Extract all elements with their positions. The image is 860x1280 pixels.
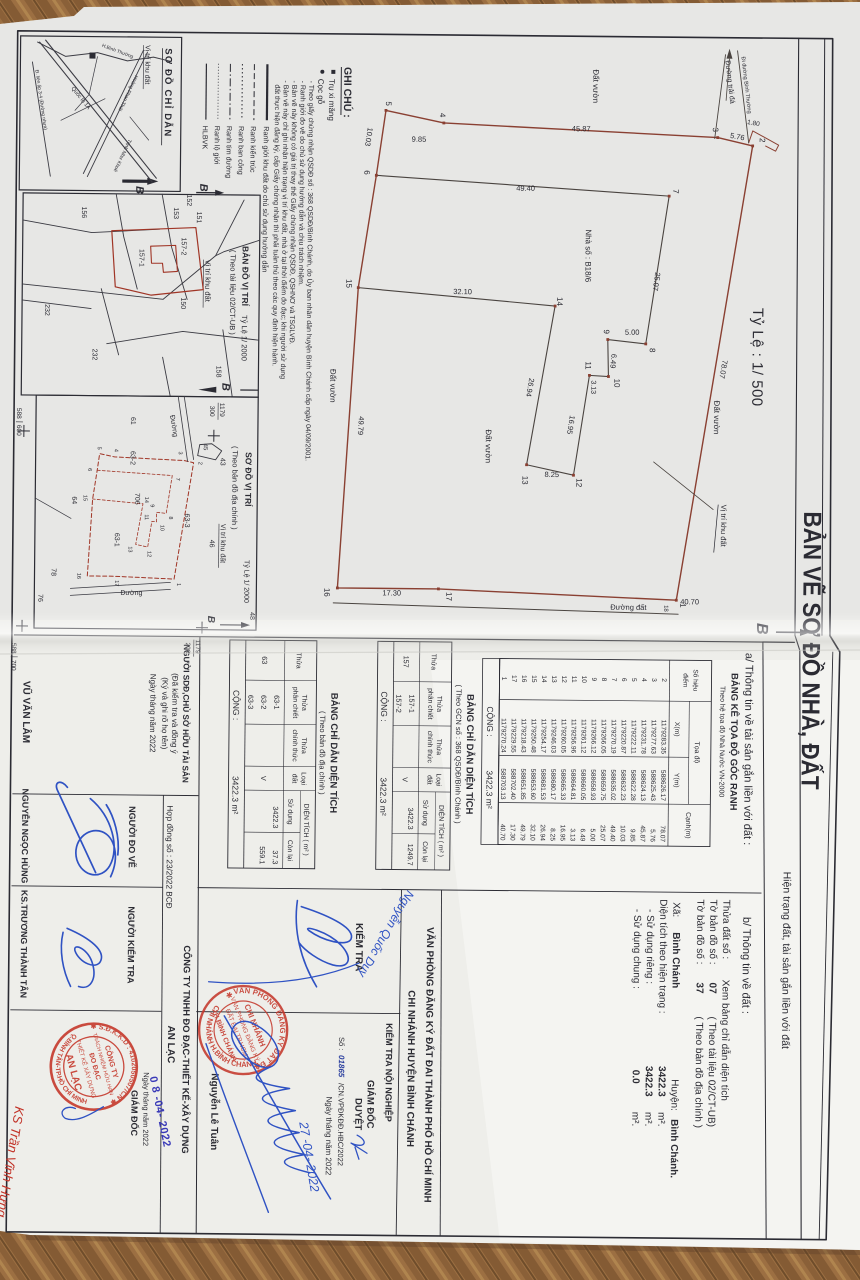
- svg-text:( Theo GCN số : 368 QSDĐ/Bình: ( Theo GCN số : 368 QSDĐ/Bình Chánh ): [453, 685, 463, 825]
- svg-text:Thửa: Thửa: [300, 694, 308, 711]
- svg-text:157-2: 157-2: [394, 694, 403, 712]
- svg-text:9.85: 9.85: [629, 829, 636, 842]
- svg-text:Loại: Loại: [299, 772, 306, 785]
- svg-text:- Sử dụng riêng :: - Sử dụng riêng :: [644, 909, 657, 984]
- svg-text:( Theo bản đồ địa chính ): ( Theo bản đồ địa chính ): [692, 1016, 705, 1128]
- svg-text:10: 10: [159, 525, 165, 531]
- svg-text:Diện tích theo hiện trạng :: Diện tích theo hiện trạng :: [656, 899, 668, 1014]
- svg-text:Tỷ Lệ 1/ 2000: Tỷ Lệ 1/ 2000: [242, 560, 249, 603]
- svg-text:588622.28: 588622.28: [629, 770, 636, 802]
- svg-text:559.1: 559.1: [258, 846, 267, 864]
- svg-text:B: B: [133, 186, 145, 194]
- svg-text:1179254.17: 1179254.17: [539, 719, 546, 754]
- svg-text:153: 153: [172, 207, 179, 219]
- svg-text:Ranh tim đường: Ranh tim đường: [224, 126, 234, 178]
- svg-text:26.94: 26.94: [539, 824, 546, 841]
- svg-text:a/ Thông tin về tài sản gắn li: a/ Thông tin về tài sản gắn liền với đất…: [741, 653, 756, 845]
- svg-text:588653.60: 588653.60: [529, 769, 536, 801]
- svg-text:588: 588: [15, 408, 22, 419]
- svg-text:Tờ bản đồ số :: Tờ bản đồ số :: [707, 900, 720, 965]
- svg-text:07: 07: [707, 983, 718, 995]
- svg-text:63-3: 63-3: [246, 695, 255, 709]
- svg-text:VŨ VĂN LÂM: VŨ VĂN LÂM: [20, 681, 34, 743]
- svg-text:KIỂM TRA NỘI NGHIỆP: KIỂM TRA NỘI NGHIỆP: [383, 1023, 395, 1122]
- svg-text:SƠ ĐỒ CHỈ DẪN: SƠ ĐỒ CHỈ DẪN: [162, 48, 175, 137]
- svg-text:150: 150: [179, 297, 186, 309]
- svg-text:Trụ xi măng: Trụ xi măng: [327, 79, 336, 121]
- svg-text:7: 7: [174, 478, 180, 481]
- svg-text:NGƯỜI ĐO VẼ: NGƯỜI ĐO VẼ: [127, 806, 139, 868]
- svg-text:588664.81: 588664.81: [569, 769, 576, 801]
- svg-text:43: 43: [219, 458, 226, 466]
- svg-text:phân chiết: phân chiết: [291, 687, 300, 719]
- svg-text:Thửa: Thửa: [435, 696, 443, 713]
- svg-text:11: 11: [583, 361, 592, 370]
- svg-text:10.03: 10.03: [619, 825, 626, 842]
- svg-text:BẢNG CHỈ DẪN DIỆN TÍCH: BẢNG CHỈ DẪN DIỆN TÍCH: [463, 694, 476, 815]
- svg-text:HLBVK: HLBVK: [201, 126, 210, 150]
- svg-text:chính thức: chính thức: [426, 731, 433, 764]
- svg-text:1249.7: 1249.7: [406, 844, 415, 866]
- svg-text:NGƯỜI KIỂM TRA: NGƯỜI KIỂM TRA: [126, 906, 138, 984]
- svg-text:8.25: 8.25: [549, 828, 556, 841]
- svg-text:m².: m².: [655, 1112, 666, 1127]
- svg-text:1179222.11: 1179222.11: [629, 720, 636, 754]
- svg-text:32.10: 32.10: [529, 824, 536, 841]
- svg-text:588635.02: 588635.02: [609, 769, 616, 801]
- svg-text:588625.43: 588625.43: [649, 770, 656, 802]
- svg-text:700: 700: [10, 660, 17, 671]
- svg-text:46: 46: [208, 540, 215, 548]
- svg-text:64: 64: [70, 496, 77, 504]
- svg-text:588665.33: 588665.33: [559, 769, 566, 801]
- svg-text:Tỷ Lệ : 1/ 500: Tỷ Lệ : 1/ 500: [748, 308, 766, 407]
- svg-text:1179266.12: 1179266.12: [589, 719, 596, 754]
- svg-text:78.07: 78.07: [659, 826, 666, 843]
- svg-text:3422.3: 3422.3: [271, 806, 280, 828]
- svg-text:16: 16: [322, 588, 331, 598]
- svg-text:10: 10: [580, 676, 587, 684]
- svg-text:1179246.03: 1179246.03: [549, 719, 556, 754]
- svg-text:40.70: 40.70: [499, 824, 506, 841]
- svg-text:Vị trí khu đất: Vị trí khu đất: [143, 45, 152, 84]
- svg-text:3422.3 m²: 3422.3 m²: [378, 777, 388, 816]
- svg-text:3422.3: 3422.3: [656, 1066, 667, 1097]
- svg-text:25.07: 25.07: [599, 825, 606, 842]
- svg-text:B: B: [219, 383, 231, 391]
- svg-text:Số :: Số :: [337, 1037, 346, 1050]
- svg-text:49.79: 49.79: [356, 416, 366, 435]
- svg-text:157-1: 157-1: [137, 249, 144, 267]
- svg-text:1179270.24: 1179270.24: [499, 718, 506, 753]
- svg-text:40.70: 40.70: [680, 597, 699, 606]
- svg-text:49.40: 49.40: [609, 825, 616, 842]
- svg-text:63-1: 63-1: [113, 533, 120, 547]
- svg-text:1179277.63: 1179277.63: [649, 720, 656, 755]
- svg-text:15: 15: [82, 495, 88, 501]
- svg-text:8.25: 8.25: [544, 470, 559, 479]
- svg-text:CỘNG :: CỘNG :: [231, 690, 241, 720]
- svg-text:Còn lại: Còn lại: [421, 841, 428, 863]
- svg-text:3422.3 m²: 3422.3 m²: [484, 770, 494, 809]
- svg-text:37: 37: [694, 982, 705, 994]
- svg-text:- Sử dụng chung :: - Sử dụng chung :: [631, 909, 644, 989]
- svg-text:1179270.19: 1179270.19: [609, 719, 616, 754]
- svg-text:5: 5: [384, 101, 393, 106]
- svg-text:KS.TRƯƠNG THÀNH TÂN: KS.TRƯƠNG THÀNH TÂN: [18, 890, 30, 998]
- svg-text:Theo hệ tọa độ Nhà Nước VN-200: Theo hệ tọa độ Nhà Nước VN-2000: [717, 686, 725, 797]
- svg-text:CÔNG TY TNHH ĐO ĐẠC-THIẾT KẾ-X: CÔNG TY TNHH ĐO ĐẠC-THIẾT KẾ-XÂY DỰNG: [180, 945, 193, 1153]
- svg-text:Xem bảng chỉ dẫn diện tích: Xem bảng chỉ dẫn diện tích: [718, 980, 732, 1101]
- svg-text:11: 11: [143, 514, 149, 520]
- svg-text:Vị trí khu đất: Vị trí khu đất: [203, 260, 212, 303]
- svg-text:4: 4: [640, 678, 647, 682]
- svg-text:Thửa đất số :: Thửa đất số :: [720, 900, 733, 960]
- svg-text:BẢN ĐỒ VỊ TRÍ: BẢN ĐỒ VỊ TRÍ: [240, 246, 252, 307]
- svg-text:13: 13: [520, 476, 529, 486]
- svg-text:6: 6: [86, 468, 92, 471]
- svg-text:13: 13: [550, 675, 557, 683]
- svg-text:2: 2: [660, 678, 667, 682]
- svg-text:3: 3: [650, 678, 657, 682]
- svg-text:588681.53: 588681.53: [539, 769, 546, 801]
- svg-text:1179: 1179: [218, 403, 225, 417]
- svg-text:( Theo tài liệu 02/CT-UB): ( Theo tài liệu 02/CT-UB): [705, 1017, 717, 1128]
- svg-text:(Ký và ghi rõ họ tên): (Ký và ghi rõ họ tên): [160, 677, 170, 749]
- svg-text:Ranh ban công: Ranh ban công: [236, 126, 245, 175]
- svg-text:1179283.35: 1179283.35: [659, 720, 666, 755]
- svg-text:5.76: 5.76: [649, 829, 656, 842]
- svg-text:9: 9: [590, 678, 597, 682]
- svg-text:76: 76: [36, 594, 43, 602]
- svg-text:đất: đất: [426, 775, 435, 785]
- svg-text:GHI CHÚ :: GHI CHÚ :: [341, 67, 354, 118]
- svg-text:/CN.VPĐKĐĐ.HBC/2022: /CN.VPĐKĐĐ.HBC/2022: [336, 1083, 346, 1166]
- svg-text:8: 8: [648, 348, 657, 353]
- svg-text:CHI NHÁNH HUYỆN BÌNH CHÁNH: CHI NHÁNH HUYỆN BÌNH CHÁNH: [404, 990, 418, 1147]
- svg-text:Bình Chánh: Bình Chánh: [670, 932, 682, 988]
- svg-text:m².: m².: [629, 1112, 640, 1127]
- svg-text:Đất vườn: Đất vườn: [328, 369, 337, 403]
- svg-text:GIÁM ĐỐC: GIÁM ĐỐC: [129, 1090, 140, 1137]
- svg-text:156: 156: [80, 206, 87, 218]
- svg-text:Huyện:: Huyện:: [668, 1079, 679, 1111]
- svg-text:Xã:: Xã:: [670, 902, 681, 917]
- svg-text:điểm: điểm: [681, 673, 689, 687]
- svg-text:Đất vườn: Đất vườn: [712, 401, 721, 435]
- svg-text:BẢNG KÊ TỌA ĐỘ GÓC RANH: BẢNG KÊ TỌA ĐỘ GÓC RANH: [727, 673, 740, 811]
- svg-text:Hiện trạng đất, tài sản gắn li: Hiện trạng đất, tài sản gắn liền với đất: [779, 872, 794, 1050]
- svg-text:13: 13: [127, 546, 133, 552]
- svg-text:GIÁM ĐỐC: GIÁM ĐỐC: [364, 1080, 376, 1129]
- svg-text:49.40: 49.40: [516, 184, 535, 193]
- svg-text:17.30: 17.30: [509, 824, 516, 841]
- svg-text:2: 2: [197, 462, 203, 465]
- svg-text:Đường: Đường: [120, 590, 142, 597]
- svg-text:( Theo bản đồ địa chính ): ( Theo bản đồ địa chính ): [230, 446, 240, 530]
- svg-text:Vị trí khu đất: Vị trí khu đất: [719, 505, 728, 548]
- svg-text:(Đã kiểm tra và đồng ý: (Đã kiểm tra và đồng ý: [170, 673, 180, 754]
- svg-text:14: 14: [143, 497, 149, 503]
- svg-text:63-1: 63-1: [272, 695, 281, 709]
- svg-text:b/ Thông tin về đất :: b/ Thông tin về đất :: [739, 917, 752, 1014]
- svg-text:3: 3: [177, 452, 183, 455]
- svg-text:Tọa độ: Tọa độ: [693, 741, 700, 763]
- svg-text:1179231.78: 1179231.78: [639, 720, 646, 755]
- svg-text:1179261.12: 1179261.12: [579, 719, 586, 754]
- svg-text:Còn lại: Còn lại: [286, 840, 293, 862]
- svg-text:Hợp đồng số : 23/2022 BCĐ: Hợp đồng số : 23/2022 BCĐ: [164, 805, 174, 908]
- svg-text:9: 9: [602, 329, 611, 334]
- svg-text:5: 5: [630, 678, 637, 682]
- svg-text:7: 7: [671, 189, 680, 194]
- svg-text:Cạnh(m): Cạnh(m): [684, 812, 691, 839]
- svg-text:63-3: 63-3: [183, 513, 190, 527]
- svg-text:SƠ ĐỒ VỊ TRÍ: SƠ ĐỒ VỊ TRÍ: [243, 452, 255, 507]
- svg-text:63-2: 63-2: [129, 451, 136, 465]
- svg-text:Số hiệu: Số hiệu: [691, 669, 700, 692]
- svg-text:16: 16: [75, 573, 81, 579]
- svg-text:9: 9: [149, 504, 155, 507]
- svg-text:3422.3: 3422.3: [406, 808, 415, 830]
- svg-text:14: 14: [555, 297, 564, 307]
- svg-text:157-1: 157-1: [407, 694, 416, 712]
- svg-text:18: 18: [662, 605, 668, 612]
- svg-text:Ranh giới khu đất do chủ sử dụ: Ranh giới khu đất do chủ sử dụng hướng d…: [260, 126, 270, 272]
- svg-text:chính thức: chính thức: [291, 729, 298, 762]
- svg-text:DUYỆT: DUYỆT: [352, 1098, 364, 1131]
- svg-text:Nguyễn Lê Tuân: Nguyễn Lê Tuân: [208, 1073, 222, 1150]
- svg-text:1179218.43: 1179218.43: [519, 718, 526, 753]
- svg-text:232: 232: [43, 304, 50, 316]
- svg-text:157-2: 157-2: [180, 237, 187, 255]
- svg-text:X(m): X(m): [673, 722, 680, 737]
- svg-text:3.13: 3.13: [569, 828, 576, 841]
- svg-text:Tờ bản đồ số :: Tờ bản đồ số :: [694, 899, 707, 964]
- svg-text:588659.75: 588659.75: [599, 769, 606, 801]
- svg-text:B: B: [197, 184, 209, 192]
- svg-text:588703.13: 588703.13: [499, 768, 506, 800]
- svg-text:Cọc gỗ: Cọc gỗ: [316, 79, 325, 105]
- svg-text:AN LẠC: AN LẠC: [165, 1025, 176, 1063]
- svg-text:8: 8: [167, 516, 173, 519]
- svg-text:Sử dụng: Sử dụng: [286, 798, 294, 824]
- svg-text:Đường đất: Đường đất: [610, 603, 647, 612]
- svg-text:Ngày tháng năm 2022: Ngày tháng năm 2022: [148, 674, 158, 753]
- svg-text:5.00: 5.00: [589, 829, 596, 842]
- svg-text:2: 2: [758, 138, 767, 143]
- svg-text:4: 4: [113, 449, 119, 452]
- svg-text:6.49: 6.49: [579, 828, 586, 841]
- svg-text:300: 300: [208, 406, 215, 417]
- svg-text:Y(m): Y(m): [672, 773, 679, 788]
- svg-text:588632.23: 588632.23: [619, 769, 626, 801]
- svg-text:600: 600: [15, 425, 22, 436]
- svg-text:12: 12: [146, 551, 152, 557]
- svg-text:6: 6: [620, 678, 627, 682]
- svg-text:8: 8: [600, 678, 607, 682]
- svg-text:1179260.05: 1179260.05: [559, 719, 566, 754]
- svg-text:3422.3: 3422.3: [643, 1066, 654, 1097]
- svg-text:Thửa: Thửa: [435, 739, 443, 756]
- svg-text:( Theo bản đồ địa chính ): ( Theo bản đồ địa chính ): [317, 711, 327, 795]
- svg-text:6.49: 6.49: [608, 353, 618, 368]
- svg-text:đất: đất: [291, 774, 300, 784]
- svg-text:V: V: [259, 776, 268, 781]
- svg-text:588680.17: 588680.17: [549, 769, 556, 801]
- svg-text:45.87: 45.87: [639, 825, 646, 842]
- svg-text:706: 706: [133, 493, 140, 505]
- svg-text:9.85: 9.85: [412, 135, 427, 144]
- svg-text:4: 4: [438, 113, 447, 118]
- svg-text:45.87: 45.87: [572, 124, 591, 133]
- svg-text:37.3: 37.3: [271, 850, 280, 864]
- svg-text:63-2: 63-2: [259, 695, 268, 709]
- svg-text:10: 10: [612, 379, 621, 389]
- svg-text:CỘNG :: CỘNG :: [379, 691, 389, 721]
- svg-text:14: 14: [540, 675, 547, 683]
- svg-text:7: 7: [610, 678, 617, 682]
- svg-text:6: 6: [362, 170, 371, 175]
- svg-text:588624.13: 588624.13: [639, 770, 646, 802]
- svg-text:1179220.87: 1179220.87: [619, 719, 626, 754]
- svg-text:1179256.96: 1179256.96: [569, 719, 576, 754]
- svg-text:Thửa: Thửa: [300, 737, 308, 754]
- svg-text:78: 78: [49, 568, 56, 576]
- svg-text:17: 17: [510, 675, 517, 683]
- svg-text:15: 15: [344, 279, 353, 289]
- svg-text:588702.40: 588702.40: [509, 768, 516, 800]
- svg-text:3422.3 m²: 3422.3 m²: [230, 776, 240, 815]
- svg-text:151: 151: [195, 212, 202, 224]
- svg-text:1: 1: [500, 677, 507, 681]
- svg-text:11: 11: [570, 676, 577, 683]
- svg-text:0.0: 0.0: [630, 1070, 641, 1084]
- svg-text:588626.17: 588626.17: [659, 770, 666, 802]
- svg-text:32.10: 32.10: [453, 287, 472, 296]
- svg-text:BẢNG CHỈ DẪN DIỆN TÍCH: BẢNG CHỈ DẪN DIỆN TÍCH: [327, 693, 340, 814]
- svg-text:152: 152: [185, 194, 192, 206]
- svg-text:1179266.05: 1179266.05: [599, 719, 606, 754]
- svg-text:17: 17: [444, 592, 453, 602]
- svg-text:Đất vườn: Đất vườn: [484, 429, 493, 463]
- svg-text:5: 5: [96, 447, 102, 450]
- svg-text:1179250.48: 1179250.48: [529, 718, 536, 753]
- svg-text:Ranh lộ giới: Ranh lộ giới: [212, 126, 221, 165]
- svg-text:232: 232: [91, 349, 98, 361]
- svg-text:NGUYỄN NGỌC HÙNG: NGUYỄN NGỌC HÙNG: [20, 789, 32, 884]
- svg-text:49.79: 49.79: [519, 824, 526, 841]
- svg-text:12: 12: [574, 478, 583, 488]
- svg-text:phân chiết: phân chiết: [426, 688, 435, 720]
- svg-text:Ranh kiến trúc: Ranh kiến trúc: [248, 126, 257, 173]
- svg-text:15: 15: [530, 675, 537, 683]
- svg-text:588651.85: 588651.85: [519, 769, 526, 801]
- svg-text:16: 16: [520, 675, 527, 683]
- svg-text:Nhà số : B18/6: Nhà số : B18/6: [583, 229, 593, 283]
- svg-text:5.00: 5.00: [625, 328, 640, 337]
- svg-text:V: V: [401, 777, 410, 782]
- svg-text:Vị trí khu đất: Vị trí khu đất: [219, 524, 228, 563]
- svg-text:Bình Chánh.: Bình Chánh.: [668, 1119, 680, 1178]
- svg-text:588660.05: 588660.05: [579, 769, 586, 801]
- svg-text:61: 61: [129, 417, 136, 425]
- svg-text:1: 1: [175, 583, 181, 586]
- svg-text:1179229.55: 1179229.55: [509, 718, 516, 753]
- svg-text:Đất vườn: Đất vườn: [591, 69, 600, 103]
- svg-text:3.13: 3.13: [589, 380, 596, 394]
- svg-text:01865: 01865: [337, 1055, 346, 1078]
- svg-text:( Theo tài liệu 02/CT-UB ): ( Theo tài liệu 02/CT-UB ): [228, 250, 238, 335]
- svg-text:Loại: Loại: [434, 773, 441, 786]
- svg-text:45: 45: [202, 444, 208, 451]
- svg-text:17.30: 17.30: [382, 588, 401, 597]
- svg-text:16.95: 16.95: [559, 825, 566, 842]
- svg-text:m².: m².: [642, 1112, 653, 1127]
- svg-text:158: 158: [214, 366, 221, 378]
- svg-text:CỘNG :: CỘNG :: [485, 706, 495, 736]
- svg-text:Sử dụng: Sử dụng: [421, 800, 429, 826]
- svg-text:12: 12: [560, 675, 567, 683]
- svg-text:588658.93: 588658.93: [589, 769, 596, 801]
- svg-text:Ngày tháng năm 202: Ngày tháng năm 2022: [324, 1096, 334, 1175]
